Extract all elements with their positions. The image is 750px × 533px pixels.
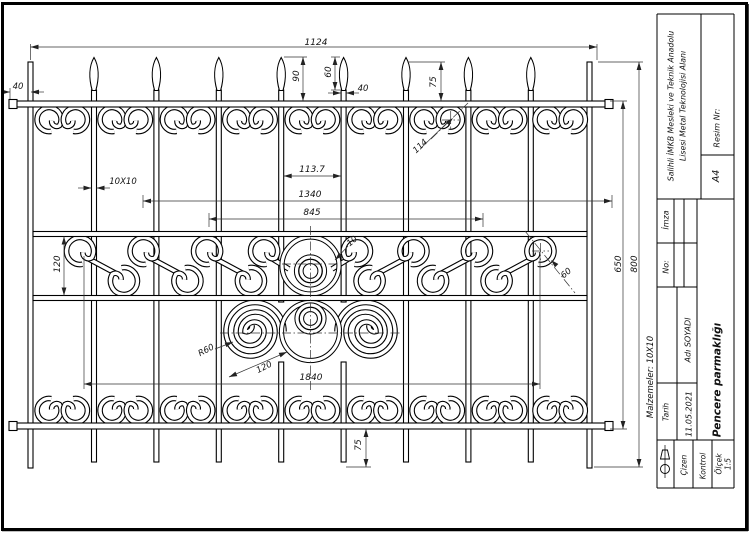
titleblock-school-2: Lisesi Metal Teknolojisi Alanı [679, 51, 688, 161]
dimension-text: 650 [614, 255, 624, 272]
dimension-text: 40 [13, 82, 24, 92]
titleblock-olcek: Ölçek [714, 453, 723, 475]
titleblock-resim-nr: Resim Nr: [713, 108, 722, 147]
dimension-text: 120 [53, 255, 63, 272]
titleblock-author: Adı SOYADI [684, 317, 693, 364]
titleblock-tarih-val: 11.05.2021 [685, 391, 694, 437]
dimension-text: 845 [303, 208, 320, 218]
dimension-text: 113.7 [299, 165, 325, 175]
dimension-text: 60 [559, 266, 574, 281]
dimension-text: 75 [354, 439, 364, 451]
spear-finial [152, 58, 160, 91]
titleblock-paper: A4 [711, 170, 722, 184]
dimension-text: 10X10 [109, 177, 136, 187]
dimension-text: 800 [630, 255, 640, 272]
dimension-text: 60 [324, 66, 334, 78]
dimension-text: 1124 [305, 38, 328, 48]
titleblock-olcek-val: 1:5 [723, 458, 732, 470]
dimension-text: 1840 [300, 373, 323, 383]
titleblock-cizen: Çizen [679, 454, 688, 475]
titleblock-imza: İmza [661, 210, 671, 229]
spear-finial [527, 58, 535, 91]
dimension-text: R60 [197, 342, 216, 359]
drawing-canvas: 1124409060407511410X10113.71340845120106… [0, 0, 750, 533]
spear-finial [90, 58, 98, 91]
drawing-sheet: 1124409060407511410X10113.71340845120106… [0, 0, 750, 533]
projection-symbol-icon [661, 445, 670, 478]
dimension-text: 1340 [299, 190, 322, 200]
spear-finial [464, 58, 472, 91]
spear-finial [339, 58, 347, 91]
dimension-text: 90 [292, 70, 302, 82]
spear-finial [402, 58, 410, 91]
dimension-text: 114 [411, 137, 430, 155]
dimension-text: 120 [255, 360, 274, 376]
titleblock-no: No: [662, 260, 671, 274]
titleblock-materials: Malzemeler: 10X10 [646, 336, 656, 418]
spear-finial [215, 58, 223, 91]
dimension-text: 40 [358, 84, 369, 94]
titleblock-tarih: Tarih [661, 403, 670, 422]
spear-finial [277, 58, 285, 91]
titleblock-drawing-title: Pencere parmaklığı [711, 322, 723, 437]
title-block: Salihli İMKB Mesleki ve Teknik AnadoluLi… [646, 14, 734, 488]
dimension-text: 75 [429, 76, 439, 88]
titleblock-school-1: Salihli İMKB Mesleki ve Teknik Anadolu [667, 31, 676, 182]
titleblock-kontrol: Kontrol [698, 452, 707, 480]
